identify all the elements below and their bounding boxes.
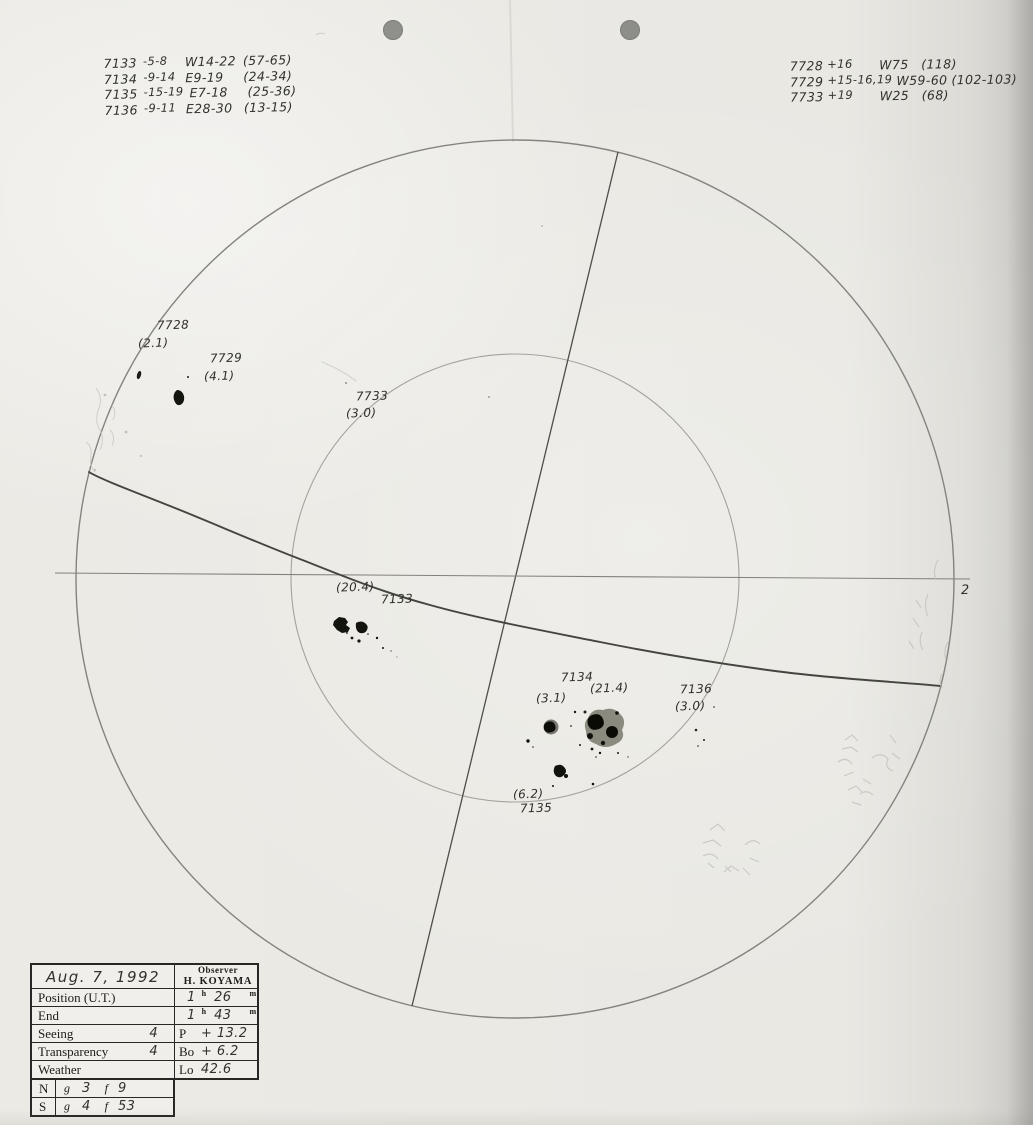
north-groups-value: 3 xyxy=(82,1081,91,1096)
longitude: E28-30 xyxy=(186,100,240,116)
disk-area-7728: (2.1) xyxy=(138,335,169,350)
range: (102-103) xyxy=(951,71,1017,87)
limb-marker-2: 2 xyxy=(961,583,970,598)
observer-label: Observer xyxy=(198,966,238,975)
date-row: Aug. 7, 1992 Observer H. KOYAMA xyxy=(32,965,257,988)
range: (25-36) xyxy=(247,83,296,99)
disk-label-7134: 7134 xyxy=(561,669,594,684)
observer-name: H. KOYAMA xyxy=(184,976,253,987)
p-value: + 13.2 xyxy=(201,1026,247,1041)
group-number: 7134 xyxy=(104,71,138,87)
seeing-value: 4 xyxy=(149,1026,158,1041)
group-number: 7135 xyxy=(104,86,138,102)
weather-row: Weather Lo 42.6 xyxy=(32,1060,257,1078)
longitude: E7-18 xyxy=(189,84,243,100)
position-hours: 1 xyxy=(187,990,196,1005)
bo-value: + 6.2 xyxy=(201,1044,239,1059)
disk-area-7136: (3.0) xyxy=(675,698,706,713)
disk-area-7135: (6.2) xyxy=(513,786,544,801)
groups-label: g xyxy=(64,1081,70,1096)
end-row: End 1 h 43 m xyxy=(32,1006,257,1024)
south-row: S g 4 f 53 xyxy=(32,1097,173,1115)
punch-hole-right xyxy=(621,21,640,40)
paper-speck xyxy=(488,396,490,398)
end-minutes: 43 xyxy=(214,1008,231,1023)
north-label: N xyxy=(32,1080,56,1097)
paper-speck xyxy=(541,225,543,227)
table-ns-box: N g 3 f 9 S g 4 f 53 xyxy=(30,1080,175,1117)
disk-area-7733: (3.0) xyxy=(346,405,377,420)
lo-label: Lo xyxy=(179,1062,201,1078)
seeing-label: Seeing xyxy=(38,1026,73,1042)
longitude: W25 xyxy=(880,88,918,104)
notes-top-left: 7133 -5-8 W14-22 (57-65) 7134 -9-14 E9-1… xyxy=(103,52,297,118)
latitude: -9-14 xyxy=(143,69,179,84)
latitude: +16 xyxy=(827,56,875,71)
transparency-label: Transparency xyxy=(38,1044,108,1060)
polar-axis-line xyxy=(412,152,618,1006)
disk-label-7135: 7135 xyxy=(520,800,553,815)
latitude: -15-19 xyxy=(143,84,183,99)
group-number: 7729 xyxy=(790,74,824,89)
group-number: 7133 xyxy=(103,55,137,71)
disk-area-7134-west: (3.1) xyxy=(536,690,567,705)
range: (118) xyxy=(921,56,957,71)
disk-label-7136: 7136 xyxy=(680,681,713,696)
disk-area-7133: (20.4) xyxy=(336,579,375,594)
south-spots-value: 53 xyxy=(118,1099,135,1114)
spots-label: f xyxy=(105,1081,108,1096)
transparency-row: Transparency 4 Bo + 6.2 xyxy=(32,1042,257,1060)
sunspot-group-7135 xyxy=(552,765,594,787)
note-line: 7733 +19 W25 (68) xyxy=(790,86,1017,105)
range: (57-65) xyxy=(243,52,292,68)
horizontal-axis-line xyxy=(55,573,970,579)
date-value: Aug. 7, 1992 xyxy=(38,968,160,986)
range: (24-34) xyxy=(243,68,292,84)
position-label: Position (U.T.) xyxy=(38,990,115,1006)
spots-label: f xyxy=(105,1099,108,1114)
disk-label-7729: 7729 xyxy=(210,350,243,365)
group-number: 7136 xyxy=(104,102,138,118)
eraser-streak xyxy=(322,362,356,381)
p-label: P xyxy=(179,1026,201,1042)
right-mid-smudges xyxy=(838,735,900,805)
hour-unit: h xyxy=(202,1007,206,1016)
transparency-value: 4 xyxy=(149,1044,158,1059)
pencil-smudge xyxy=(316,33,325,35)
latitude: +15-16,19 xyxy=(827,72,892,87)
lo-value: 42.6 xyxy=(201,1062,232,1077)
position-row: Position (U.T.) 1 h 26 m xyxy=(32,988,257,1006)
disk-area-7134: (21.4) xyxy=(590,680,629,695)
end-label: End xyxy=(38,1008,59,1024)
disk-area-7729: (4.1) xyxy=(204,368,235,383)
longitude: E9-19 xyxy=(185,69,239,85)
group-number: 7728 xyxy=(790,58,824,73)
range: (13-15) xyxy=(244,99,293,115)
seeing-row: Seeing 4 P + 13.2 xyxy=(32,1024,257,1042)
south-groups-value: 4 xyxy=(82,1099,91,1114)
solar-disk-drawing xyxy=(0,0,1033,1125)
latitude: -5-8 xyxy=(143,53,179,68)
table-main-box: Aug. 7, 1992 Observer H. KOYAMA Position… xyxy=(30,963,259,1080)
longitude: W75 xyxy=(879,57,917,73)
disk-label-7133: 7133 xyxy=(381,591,414,606)
south-label: S xyxy=(32,1098,56,1115)
groups-label: g xyxy=(64,1099,70,1114)
longitude: W14-22 xyxy=(185,53,239,69)
sunspot-group-7728 xyxy=(136,370,189,379)
punch-hole-left xyxy=(384,21,403,40)
group-number: 7733 xyxy=(790,89,824,104)
sunspot-group-7733 xyxy=(345,382,347,384)
north-spots-value: 9 xyxy=(118,1081,127,1096)
disk-label-7733: 7733 xyxy=(356,388,389,403)
weather-label: Weather xyxy=(38,1062,81,1078)
latitude: -9-11 xyxy=(144,100,180,115)
minute-unit: m xyxy=(249,1007,256,1016)
sunspot-group-7133 xyxy=(333,617,398,658)
range: (68) xyxy=(922,87,949,102)
sunspot-observation-sheet: 7133 -5-8 W14-22 (57-65) 7134 -9-14 E9-1… xyxy=(0,0,1033,1125)
hour-unit: h xyxy=(202,989,206,998)
latitude: +19 xyxy=(828,87,876,102)
sunspot-group-7729 xyxy=(174,390,185,405)
notes-top-right: 7728 +16 W75 (118) 7729 +15-16,19 W59-60… xyxy=(790,55,1018,105)
paper-crease xyxy=(510,0,513,142)
bo-label: Bo xyxy=(179,1044,201,1060)
observation-table: Aug. 7, 1992 Observer H. KOYAMA Position… xyxy=(30,963,259,1117)
sunspot-group-7134 xyxy=(526,709,628,758)
minute-unit: m xyxy=(249,989,256,998)
end-hours: 1 xyxy=(187,1008,196,1023)
longitude: W59-60 xyxy=(896,72,947,88)
north-row: N g 3 f 9 xyxy=(32,1080,173,1097)
disk-label-7728: 7728 xyxy=(157,317,190,332)
lower-right-smudges xyxy=(703,824,760,875)
position-minutes: 26 xyxy=(214,990,231,1005)
